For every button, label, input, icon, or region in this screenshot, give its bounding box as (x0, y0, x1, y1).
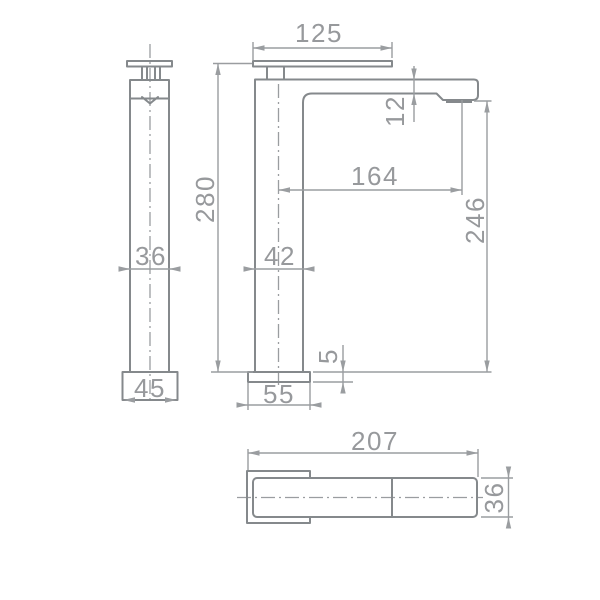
side-handle-stem (142, 67, 160, 81)
dim-label-front-base-width: 55 (263, 379, 295, 409)
faucet-dimension-drawing: 45 36 125 (0, 0, 600, 600)
dim-label-spout-reach: 164 (351, 161, 399, 191)
dim-side-body-width: 36 (119, 241, 181, 272)
dim-overall-depth: 207 (248, 426, 478, 477)
dim-label-overall-depth: 207 (351, 426, 399, 456)
dim-label-base-plate-height: 5 (313, 348, 343, 364)
front-view: 125 12 164 246 (190, 18, 492, 410)
dim-outlet-height: 246 (460, 101, 492, 372)
technical-drawing-canvas: 45 36 125 (0, 0, 600, 600)
dim-spout-wall: 12 (380, 66, 417, 127)
dim-label-side-body-width: 36 (135, 241, 167, 271)
front-body-outline (255, 80, 478, 373)
dim-spout-reach: 164 (279, 100, 463, 195)
dim-label-front-body-width: 42 (264, 241, 296, 271)
dim-top-spout-width: 36 (479, 467, 513, 529)
dim-handle-length: 125 (253, 18, 392, 60)
side-view: 45 36 (119, 44, 181, 403)
dim-base-plate-height: 5 (313, 345, 346, 394)
dim-label-outlet-height: 246 (460, 196, 490, 244)
dim-total-height: 280 (190, 64, 221, 373)
dim-side-base-width: 45 (124, 373, 177, 403)
front-handle-stem (267, 67, 284, 80)
dim-label-spout-wall: 12 (380, 95, 410, 127)
dim-label-side-base-width: 45 (134, 373, 166, 403)
dim-label-handle-length: 125 (295, 18, 343, 48)
top-view: 207 36 (237, 426, 513, 529)
dim-label-top-spout-width: 36 (479, 482, 509, 514)
dim-front-base-width: 55 (237, 379, 322, 410)
dim-label-total-height: 280 (190, 175, 220, 223)
